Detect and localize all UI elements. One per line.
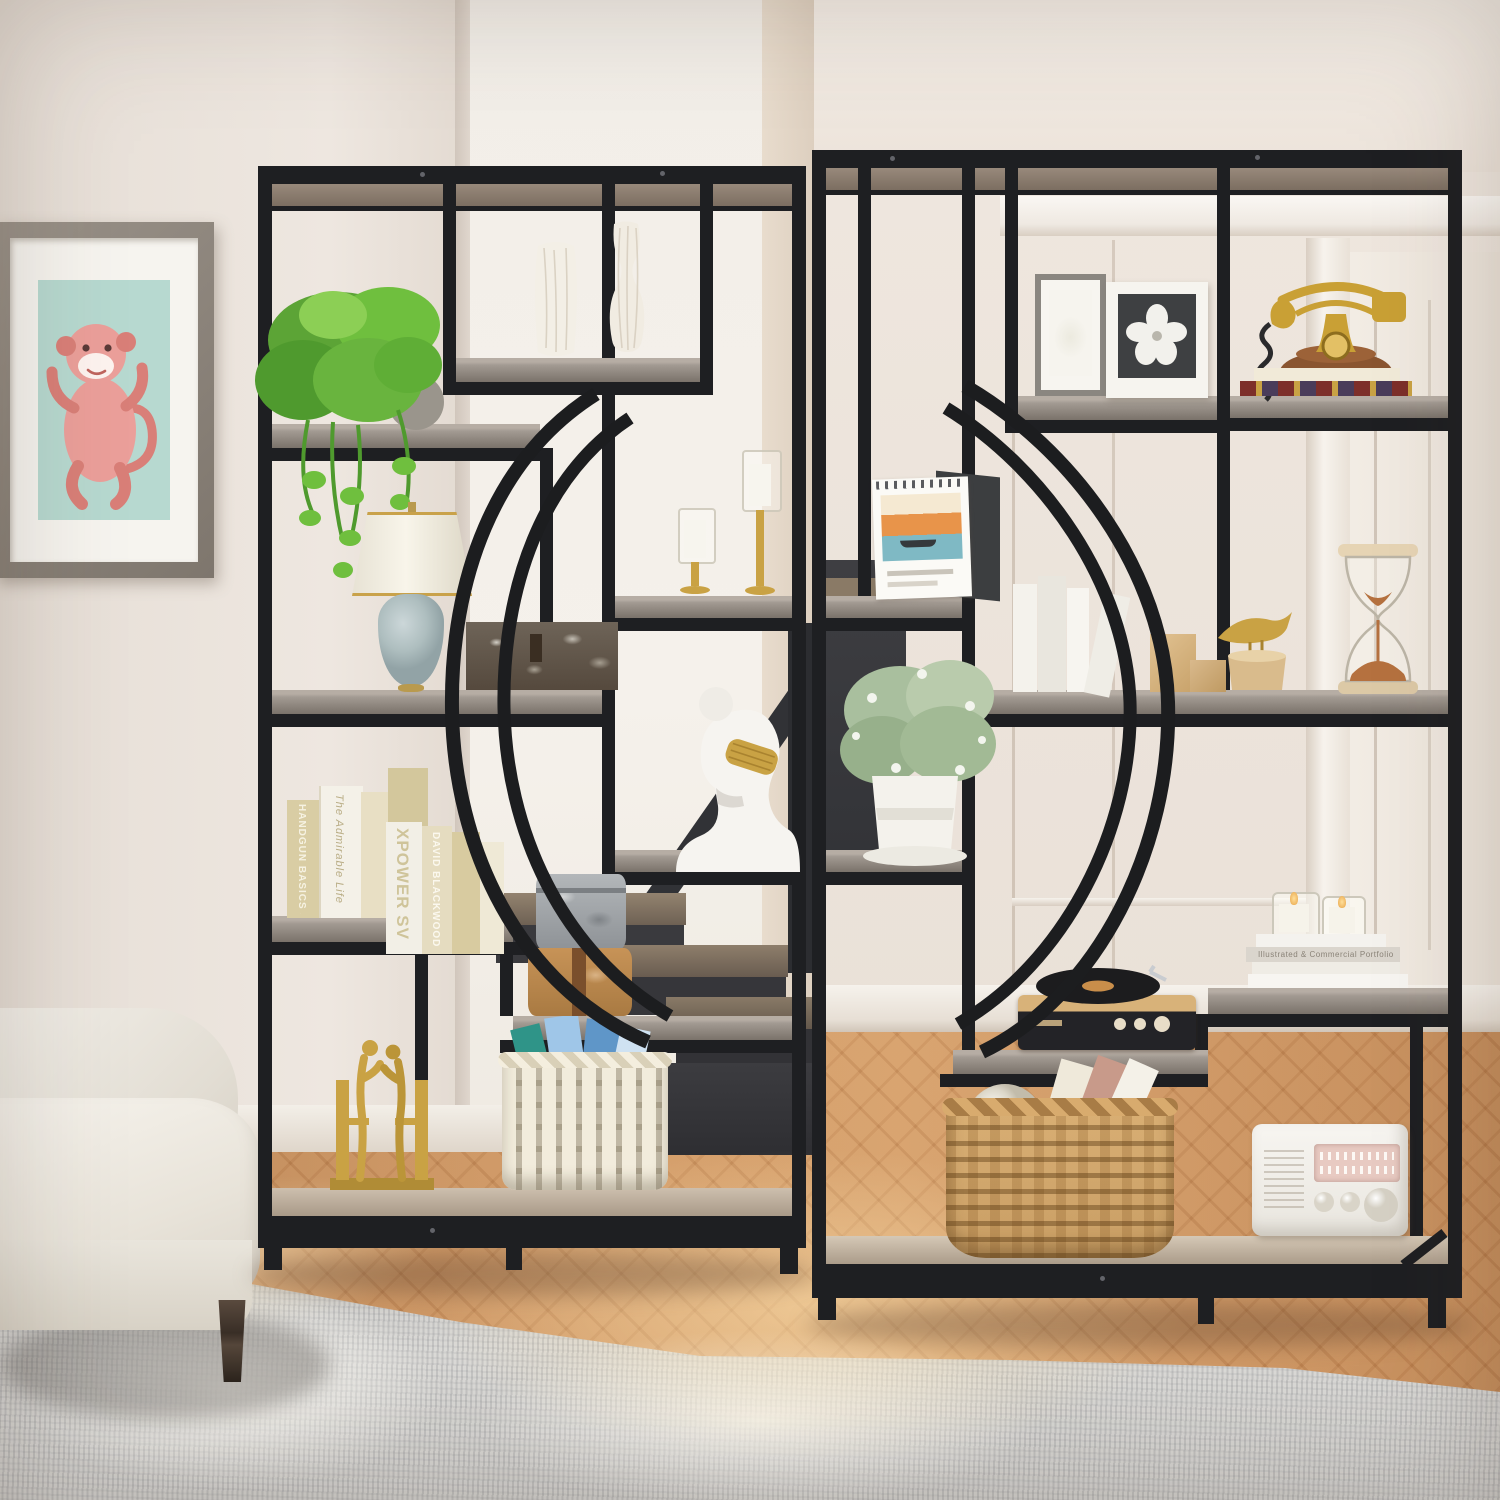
crown-molding [1000, 196, 1500, 236]
right-unit-floor-shadow [806, 1302, 1474, 1348]
door-panel-line [1428, 300, 1431, 950]
stair-tread [666, 997, 814, 1029]
wall-panel-groove [1012, 240, 1015, 1000]
stair-base-mass [530, 1063, 814, 1155]
wall-panel-groove [1112, 240, 1115, 1000]
wall-art-frame [0, 222, 214, 578]
door-trim [1306, 238, 1350, 1000]
chair-rail [1012, 898, 1307, 906]
staircase [470, 555, 814, 1155]
left-unit-floor-shadow [250, 1252, 816, 1296]
stair-tread [486, 893, 686, 925]
baseboard-right [814, 985, 1500, 1035]
monkey-eye [104, 344, 111, 351]
sofa [0, 1000, 260, 1385]
monkey-muzzle [78, 353, 114, 379]
door-panel-line [1374, 300, 1377, 950]
monkey-ear [116, 332, 136, 352]
stair-newel-post [788, 623, 814, 973]
stair-tread [576, 945, 788, 977]
ceiling-strip [814, 0, 1500, 172]
monkey-eye [82, 344, 89, 351]
left-wall [0, 0, 470, 1165]
sofa-skirt [0, 1240, 252, 1330]
door [1350, 252, 1500, 1000]
sofa-leg [216, 1300, 248, 1382]
monkey-illustration [38, 280, 170, 520]
living-room-scene: HANDGUN BASICS SAFETY & HANDLING The Adm… [0, 0, 1500, 1500]
monkey-ear [56, 336, 76, 356]
stair-sliver-tread [826, 578, 888, 604]
stair-riser [676, 1027, 814, 1067]
wall-art-print [38, 280, 170, 520]
